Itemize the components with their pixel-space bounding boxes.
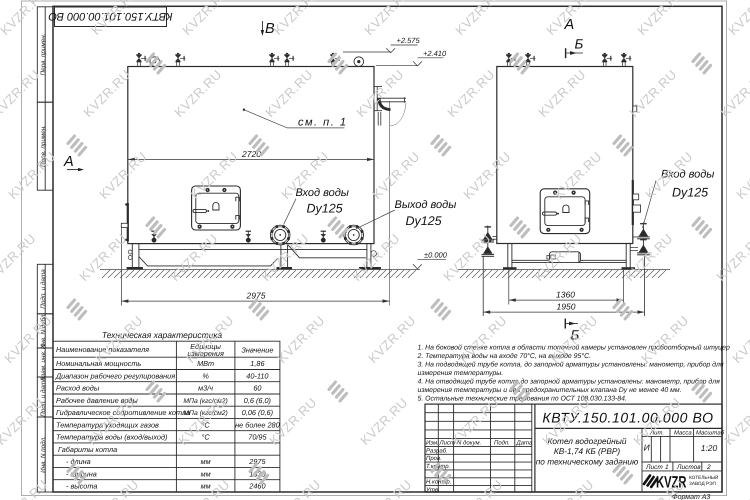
svg-text:Температура воды (вход/выход): Температура воды (вход/выход) [56,433,167,442]
svg-text:м3/ч: м3/ч [198,384,213,393]
svg-text:МВт: МВт [197,359,214,368]
svg-text:Dy125: Dy125 [307,202,343,216]
svg-text:KVZR.RU: KVZR.RU [369,149,422,202]
svg-text:60: 60 [253,384,261,393]
svg-text:Инв. N подл.: Инв. N подл. [40,436,47,473]
svg-text:1: 1 [665,464,669,471]
svg-text:KVZR.RU: KVZR.RU [365,313,418,366]
svg-text:не более 280: не более 280 [235,420,280,429]
svg-text:измерения температуры.: измерения температуры. [418,370,504,377]
svg-text:Взам. инв. N: Взам. инв. N [40,344,47,381]
svg-text:КВ-1,74 КБ (РВР): КВ-1,74 КБ (РВР) [554,446,621,456]
svg-text:KVZR.RU: KVZR.RU [725,477,750,500]
svg-text:1:20: 1:20 [701,443,718,453]
svg-text:Масса: Масса [674,430,692,437]
svg-text:KVZR.RU: KVZR.RU [0,0,51,38]
svg-text:±0.000: ±0.000 [424,251,448,260]
svg-text:0,6 (6,0): 0,6 (6,0) [244,396,271,405]
svg-text:измерения температуры и два пр: измерения температуры и два предохраните… [418,387,682,394]
svg-text:ЗАВОД РЭП: ЗАВОД РЭП [689,481,716,486]
svg-text:Перв. примен.: Перв. примен. [40,34,47,76]
svg-text:КОТЕЛЬНЫЙ: КОТЕЛЬНЫЙ [689,474,718,480]
svg-text:KVZR.RU: KVZR.RU [725,0,750,38]
svg-text:Выход воды: Выход воды [395,199,457,211]
svg-text:KVZR.RU: KVZR.RU [80,67,133,120]
svg-text:KVZR.RU: KVZR.RU [452,477,505,500]
svg-text:KVZR.RU: KVZR.RU [0,231,39,284]
svg-text:4. На отводящей трубе котла,д: 4. На отводящей трубе котла,до запорной … [418,378,721,386]
svg-text:Значение: Значение [241,346,273,355]
svg-text:Диапазон рабочего регулировани: Диапазон рабочего регулирования [55,371,175,380]
svg-text:+2.410: +2.410 [423,49,447,58]
svg-text:Dy125: Dy125 [406,214,442,228]
svg-text:Изм.: Изм. [426,439,439,446]
svg-text:KVZR.RU: KVZR.RU [729,313,750,366]
svg-text:- длина: - длина [66,457,91,466]
svg-text:Расход воды: Расход воды [56,384,100,393]
svg-text:мм: мм [201,469,211,478]
svg-text:Пров.: Пров. [426,455,442,462]
svg-text:Dy125: Dy125 [672,186,708,200]
svg-text:1950: 1950 [557,302,576,312]
svg-text:А: А [63,154,74,170]
svg-text:KVZR.RU: KVZR.RU [721,395,750,448]
svg-text:Утв.: Утв. [425,486,440,493]
svg-text:KVZR.RU: KVZR.RU [274,313,327,366]
svg-text:0,06 (0,6): 0,06 (0,6) [242,408,273,417]
svg-text:Разраб.: Разраб. [426,447,448,454]
svg-text:KVZR.RU: KVZR.RU [5,149,58,202]
svg-text:+2.575: +2.575 [397,36,421,45]
svg-text:°С: °С [201,433,210,442]
svg-text:KVZR.RU: KVZR.RU [357,395,410,448]
svg-text:%: % [202,371,209,380]
svg-text:мм: мм [201,457,211,466]
svg-text:- высота: - высота [66,482,97,491]
svg-text:Габариты котла: Габариты котла [58,445,117,454]
svg-text:70/95: 70/95 [248,433,267,442]
svg-text:Масштаб: Масштаб [696,430,725,437]
svg-text:KVZR.RU: KVZR.RU [361,477,414,500]
svg-text:KVZR.RU: KVZR.RU [0,477,51,500]
svg-text:KVZR.RU: KVZR.RU [444,67,497,120]
svg-text:Дата: Дата [516,439,533,446]
svg-text:см. п. 1: см. п. 1 [298,117,347,129]
svg-text:40-110: 40-110 [246,371,268,380]
svg-text:1,86: 1,86 [250,359,265,368]
svg-text:Б: Б [575,37,584,52]
svg-text:KVZR.RU: KVZR.RU [713,231,750,284]
svg-text:KVZR.RU: KVZR.RU [543,477,596,500]
svg-text:KVZR.RU: KVZR.RU [733,149,750,202]
svg-text:Подп. и дата: Подп. и дата [40,269,47,309]
svg-text:Лист: Лист [645,464,663,471]
svg-text:Вход воды: Вход воды [296,187,349,199]
svg-text:KVZR.RU: KVZR.RU [638,313,691,366]
svg-text:2: 2 [706,464,711,471]
svg-text:1360: 1360 [556,289,575,299]
svg-text:по техническому заданию: по техническому заданию [536,457,639,467]
svg-text:Подп.: Подп. [494,439,510,446]
svg-text:Листов: Листов [676,464,701,471]
svg-text:KVZR.RU: KVZR.RU [626,67,679,120]
